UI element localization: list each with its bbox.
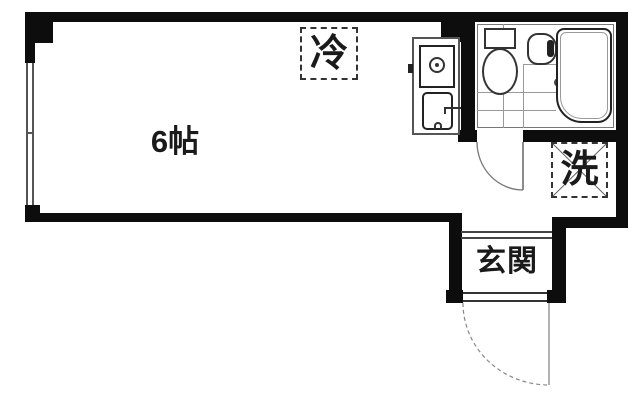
entrance-label: 玄関 bbox=[461, 247, 553, 277]
washer-label: 洗 bbox=[560, 151, 598, 189]
fridge-space: 冷 bbox=[300, 27, 358, 80]
room-size-label: 6帖 bbox=[135, 126, 215, 157]
bathroom-door-arc bbox=[477, 142, 523, 190]
floor-plan: 冷 洗 6帖 玄関 bbox=[0, 0, 640, 405]
fridge-label: 冷 bbox=[310, 35, 348, 73]
entrance-door-arc bbox=[463, 303, 549, 385]
washer-space: 洗 bbox=[551, 142, 608, 198]
